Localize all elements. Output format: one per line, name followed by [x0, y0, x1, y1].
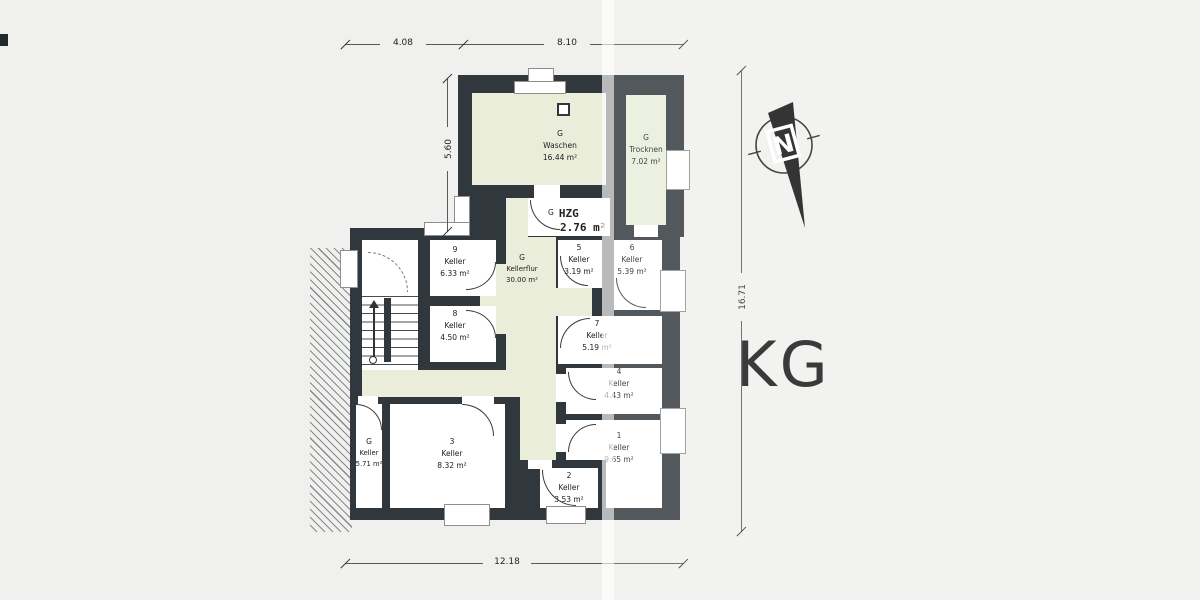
room-number: 8	[425, 308, 485, 320]
door-gap-room-8	[496, 308, 506, 334]
room-label-2: 2 Keller 3.53 m²	[546, 470, 592, 506]
room-label-9: 9 Keller 6.33 m²	[425, 244, 485, 280]
stair-arrow-head-icon	[369, 300, 379, 308]
room-label-3: 3 Keller 8.32 m²	[428, 436, 476, 472]
scan-fold-artifact	[602, 0, 614, 600]
room-number: 9	[425, 244, 485, 256]
corridor-lower	[520, 397, 556, 460]
room-area: 16.44 m²	[530, 152, 590, 164]
room-name: Keller	[425, 256, 485, 268]
room-number: G	[494, 252, 550, 264]
room-number: 2	[546, 470, 592, 482]
room-label-kellerflur: G Kellerflur 30.00 m²	[494, 252, 550, 286]
door-gap-room-1	[556, 424, 566, 452]
room-area: 3.53 m²	[546, 494, 592, 506]
room-area: 30.00 m²	[494, 275, 550, 286]
stair-direction-line	[373, 306, 375, 360]
window-stairwell-left	[340, 250, 358, 288]
exterior-hatch	[310, 248, 352, 532]
room-number: 3	[428, 436, 476, 448]
room-label-5: 5 Keller 3.19 m²	[556, 242, 602, 278]
dim-label-12-18: 12.18	[483, 557, 531, 567]
room-name: Waschen	[530, 140, 590, 152]
room-number: 5	[556, 242, 602, 254]
window-room-2-bottom	[546, 506, 586, 524]
room-number: G	[530, 128, 590, 140]
room-label-8: 8 Keller 4.50 m²	[425, 308, 485, 344]
room-name: Keller	[546, 482, 592, 494]
room-name: Kellerflur	[494, 264, 550, 275]
room-label-waschen: G Waschen 16.44 m²	[530, 128, 590, 164]
room-number: G	[350, 436, 388, 448]
scan-wash-artifact	[614, 0, 1200, 600]
room-number: G	[548, 208, 554, 217]
corridor-hzg-connector	[506, 198, 528, 237]
scan-speck	[0, 34, 8, 46]
room-label-g-keller: G Keller 5.71 m²	[350, 436, 388, 470]
door-gap-room-2	[528, 460, 552, 469]
floor-plan-sheet: G Waschen 16.44 m² G Trocknen 7.02 m² G …	[0, 0, 1200, 600]
room-area: 5.71 m²	[350, 459, 388, 470]
room-area: 8.32 m²	[428, 460, 476, 472]
room-name: Keller	[428, 448, 476, 460]
room-area: 6.33 m²	[425, 268, 485, 280]
window-waschen-top-outer	[528, 68, 554, 82]
dim-label-8-10: 8.10	[544, 38, 590, 48]
room-area: 4.50 m²	[425, 332, 485, 344]
room-name: Keller	[425, 320, 485, 332]
corridor-arm-right	[556, 288, 592, 316]
stair-stringer	[384, 298, 391, 362]
room-name: HZG	[559, 207, 579, 220]
dim-label-4-08: 4.08	[380, 38, 426, 48]
door-gap-waschen	[534, 185, 560, 199]
dim-label-5-60: 5.60	[444, 127, 454, 171]
chimney-icon	[557, 103, 570, 116]
door-gap-room-4	[556, 374, 566, 402]
room-name: Keller	[350, 448, 388, 459]
room-name: Keller	[556, 254, 602, 266]
window-waschen-top-inner	[514, 81, 566, 94]
window-room-3-bottom	[444, 504, 490, 526]
corridor-under-stairs	[362, 370, 506, 397]
room-area: 3.19 m²	[556, 266, 602, 278]
stair-start-circle	[369, 356, 377, 364]
